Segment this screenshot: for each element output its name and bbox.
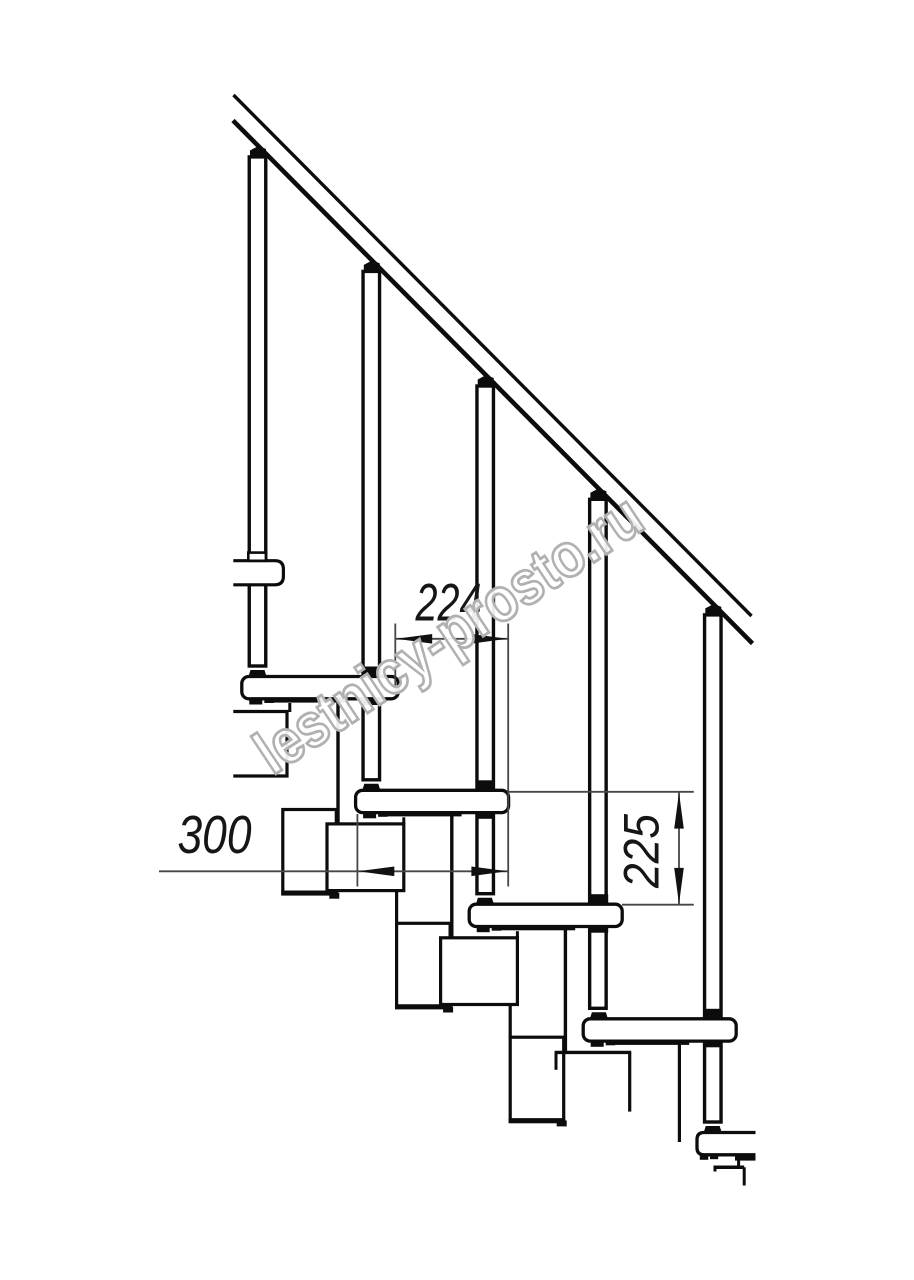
svg-text:300: 300: [178, 805, 252, 865]
svg-text:225: 225: [614, 814, 670, 889]
